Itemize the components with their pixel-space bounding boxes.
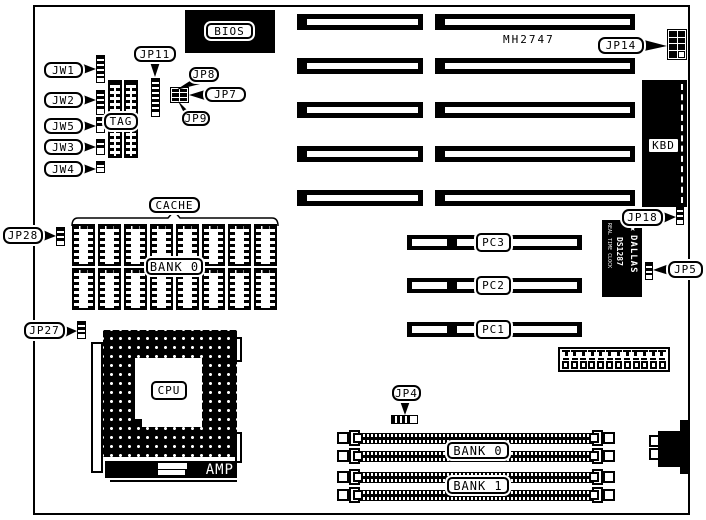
slot-stripe (412, 239, 447, 246)
jumper-pad (172, 93, 179, 96)
rtc-part-number: DS1287 (612, 223, 624, 294)
cache-chip (254, 224, 277, 266)
power-pin (649, 350, 657, 360)
jumper-jw1 (96, 55, 105, 83)
cpu-socket-notch (135, 419, 142, 427)
slot-stripe (512, 326, 577, 333)
simm-latch (349, 430, 360, 446)
jumper-pad (678, 31, 686, 37)
slot-stripe (457, 239, 477, 246)
cache-chip (72, 224, 95, 266)
cache-chip (228, 268, 251, 310)
tag-label: TAG (104, 113, 138, 130)
power-pin (597, 350, 605, 360)
jumper-pad (669, 44, 677, 50)
jumper-pad (669, 38, 677, 44)
callout-jw2: JW2 (44, 92, 83, 108)
simm-latch (349, 487, 360, 503)
power-hole-row (562, 361, 666, 369)
motherboard-diagram: BIOS MH2747 JP14 KBD JW1 JW2 JW5 JW3 JW4… (0, 0, 706, 520)
callout-jw5: JW5 (44, 118, 83, 134)
power-connector (558, 347, 670, 372)
callout-jw3: JW3 (44, 139, 83, 155)
amp-logo: AMP (206, 462, 234, 478)
kbd-label: KBD (648, 138, 679, 153)
simm-end-cap (603, 450, 615, 462)
jumper-pad (678, 44, 686, 50)
jumper-pad (180, 93, 187, 96)
jumper-jw2 (96, 90, 105, 115)
callout-jp27: JP27 (24, 322, 65, 339)
power-socket-hole (606, 361, 613, 369)
amp-bar-window (158, 470, 185, 475)
cache-chip (72, 268, 95, 310)
socket-latch-tab (235, 337, 242, 362)
slot-label-pc1: PC1 (476, 320, 511, 339)
rtc-subtitle: REAL TIME CLOCK (604, 223, 612, 294)
power-socket-hole (597, 361, 604, 369)
isa-slot-segment (297, 14, 423, 30)
jumper-jp28 (56, 227, 65, 246)
isa-slot-segment (297, 58, 423, 74)
callout-jw4: JW4 (44, 161, 83, 177)
power-socket-hole (588, 361, 595, 369)
simm-end-cap (337, 432, 349, 444)
jumper-pad (172, 89, 179, 92)
callout-jp7: JP7 (205, 87, 246, 102)
power-pin (562, 350, 570, 360)
jumper-jp27 (77, 321, 86, 339)
cpu-label: CPU (151, 381, 187, 400)
power-pin (579, 350, 587, 360)
jumper-jp5 (645, 262, 653, 280)
slot-stripe (512, 239, 577, 246)
power-pin (658, 350, 666, 360)
simm-end-cap (603, 471, 615, 483)
cache-chip (98, 224, 121, 266)
callout-jp9: JP9 (182, 111, 210, 126)
slot-stripe (412, 282, 447, 289)
simm-latch (349, 448, 360, 464)
power-socket-hole (659, 361, 666, 369)
socket-latch-tab (235, 432, 242, 463)
simm-end-cap (337, 489, 349, 501)
isa-slot-segment (435, 146, 635, 162)
isa-slot-segment (435, 14, 635, 30)
cache-chip (202, 224, 225, 266)
isa-slot-segment (435, 102, 635, 118)
jumper-jp8-jp7-jp9 (170, 87, 189, 103)
power-pin (623, 350, 631, 360)
memory-bank1-label: BANK 1 (447, 477, 509, 494)
simm-end-cap (337, 450, 349, 462)
jumper-pad (172, 98, 179, 101)
rtc-chip-dallas: REAL TIME CLOCK DS1287 DALLAS ★ (602, 220, 642, 297)
jumper-jp11 (151, 78, 160, 117)
jumper-jp18 (676, 206, 684, 225)
power-socket-hole (571, 361, 578, 369)
power-socket-hole (615, 361, 622, 369)
callout-jw1: JW1 (44, 62, 83, 78)
keyboard-controller-chip: KBD (642, 80, 687, 207)
power-socket-hole (641, 361, 648, 369)
slot-stripe (512, 282, 577, 289)
simm-latch (592, 430, 603, 446)
slot-stripe (457, 326, 477, 333)
power-socket-hole (580, 361, 587, 369)
simm-end-cap (337, 471, 349, 483)
cache-chip (254, 268, 277, 310)
jumper-pad (678, 51, 686, 59)
jumper-pad (669, 51, 677, 59)
jumper-pad (678, 38, 686, 44)
callout-jp18: JP18 (622, 209, 663, 226)
simm-latch (349, 469, 360, 485)
cache-chip (202, 268, 225, 310)
power-socket-hole (633, 361, 640, 369)
cpu-side-bar (91, 342, 103, 473)
cache-chip (98, 268, 121, 310)
cache-bank-label: BANK 0 (146, 258, 203, 275)
amp-bar-window (158, 463, 187, 469)
power-socket-hole (562, 361, 569, 369)
slot-stripe (457, 282, 477, 289)
cache-label: CACHE (149, 197, 200, 213)
jumper-jp14 (667, 29, 687, 60)
kbd-dashed-line (681, 84, 683, 203)
slot-stripe (412, 326, 447, 333)
callout-jp28: JP28 (3, 227, 43, 244)
jumper-jp4 (391, 415, 418, 424)
memory-bank0-label: BANK 0 (447, 442, 509, 459)
slot-label-pc2: PC2 (476, 276, 511, 295)
callout-jp11: JP11 (134, 46, 176, 62)
callout-jp8: JP8 (189, 67, 219, 82)
jumper-pad (669, 31, 677, 37)
isa-slot-segment (435, 58, 635, 74)
bios-label: BIOS (206, 23, 253, 39)
power-pin (571, 350, 579, 360)
power-pin (632, 350, 640, 360)
jumper-jw3 (96, 139, 105, 155)
callout-jp14: JP14 (598, 37, 644, 54)
socket-amp-bar: AMP (105, 461, 237, 478)
power-pin (588, 350, 596, 360)
simm-latch (592, 487, 603, 503)
power-socket-hole (624, 361, 631, 369)
isa-slot-column-left (297, 14, 423, 206)
bios-chip: BIOS (185, 10, 275, 53)
simm-end-cap (603, 489, 615, 501)
isa-slot-segment (297, 146, 423, 162)
simm-end-cap (603, 432, 615, 444)
cache-chip (124, 268, 147, 310)
isa-slot-segment (297, 102, 423, 118)
amp-bar-underline (110, 480, 237, 482)
isa-slot-segment (297, 190, 423, 206)
power-pin (606, 350, 614, 360)
callout-jp4: JP4 (392, 385, 421, 401)
simm-latch (592, 448, 603, 464)
slot-label-pc3: PC3 (476, 233, 511, 252)
jumper-pad (180, 89, 187, 92)
jumper-pad (180, 98, 187, 101)
cache-chip (124, 224, 147, 266)
jumper-jw4 (96, 161, 105, 173)
power-pin (614, 350, 622, 360)
board-part-number: MH2747 (503, 33, 555, 46)
callout-jp5: JP5 (668, 261, 703, 278)
simm-latch (592, 469, 603, 485)
power-pin (640, 350, 648, 360)
cache-chip (228, 224, 251, 266)
power-pin-row (562, 350, 666, 360)
isa-slot-segment (435, 190, 635, 206)
power-socket-hole (650, 361, 657, 369)
